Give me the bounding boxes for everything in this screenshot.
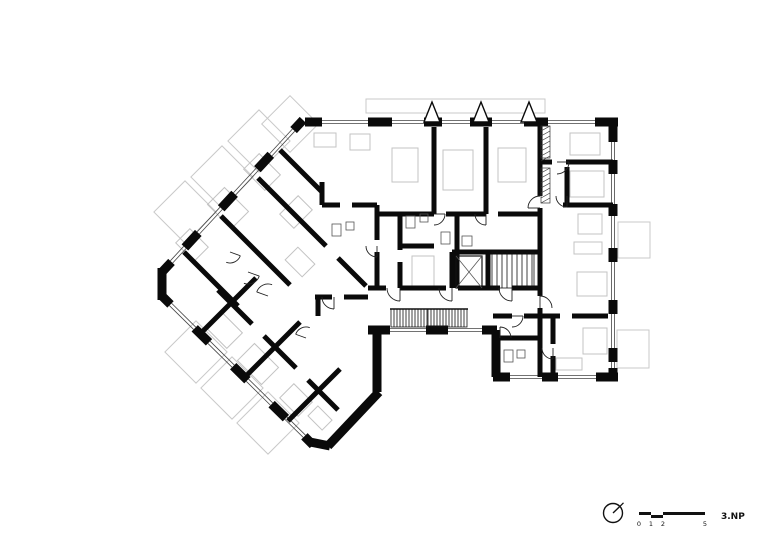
scale-label: 1 bbox=[649, 520, 653, 528]
fixture bbox=[504, 350, 513, 362]
interior-wall bbox=[218, 290, 252, 324]
balcony-diamond bbox=[191, 146, 253, 208]
scale-bar bbox=[651, 515, 663, 518]
north-arrow-icon bbox=[620, 503, 624, 507]
window bbox=[233, 168, 256, 193]
door-arc bbox=[387, 288, 400, 301]
furniture bbox=[577, 272, 607, 296]
door-arc bbox=[230, 252, 240, 256]
facade-wall bbox=[304, 436, 313, 445]
interior-wall bbox=[338, 258, 366, 286]
facade-wall bbox=[328, 392, 379, 446]
door-arc bbox=[528, 196, 540, 208]
door-arc bbox=[434, 214, 445, 225]
furniture bbox=[583, 328, 607, 354]
window bbox=[236, 170, 259, 195]
scale-label: 0 bbox=[637, 520, 641, 528]
furniture bbox=[392, 148, 418, 182]
fixture bbox=[441, 232, 450, 244]
furniture bbox=[314, 133, 336, 147]
window bbox=[172, 303, 196, 327]
door-arc bbox=[296, 334, 306, 338]
door-arc bbox=[248, 272, 259, 276]
door-arc bbox=[540, 296, 552, 308]
window bbox=[197, 207, 220, 232]
floor-plan-drawing: 01253.NP bbox=[0, 0, 768, 543]
furniture bbox=[412, 256, 434, 286]
fixture bbox=[346, 222, 354, 230]
door-arc bbox=[226, 256, 240, 263]
scale-label: 2 bbox=[661, 520, 665, 528]
window bbox=[169, 306, 193, 330]
floor-plan-page: 01253.NP bbox=[0, 0, 768, 543]
facade-wall bbox=[257, 155, 270, 169]
facade-wall bbox=[272, 404, 286, 418]
door-arc bbox=[499, 288, 512, 301]
balcony-diamond bbox=[237, 392, 299, 454]
scale-label: 5 bbox=[703, 520, 707, 528]
furniture bbox=[574, 242, 602, 254]
interior-wall bbox=[244, 322, 300, 378]
fixture bbox=[332, 224, 341, 236]
scale-bar bbox=[663, 512, 705, 515]
scale-bar bbox=[639, 512, 651, 515]
balcony-door bbox=[521, 102, 537, 122]
furniture bbox=[578, 214, 602, 234]
interior-wall bbox=[288, 369, 340, 421]
interior-wall bbox=[184, 252, 238, 306]
interior-wall bbox=[200, 278, 256, 334]
north-arrow-icon bbox=[613, 506, 620, 513]
floor-label: 3.NP bbox=[721, 512, 745, 522]
furniture bbox=[308, 406, 332, 430]
furniture bbox=[570, 133, 600, 155]
facade-wall bbox=[294, 120, 303, 130]
facade-wall bbox=[162, 296, 171, 304]
balcony-door bbox=[473, 102, 489, 122]
furniture bbox=[285, 247, 315, 277]
interior-wall bbox=[280, 150, 322, 192]
door-arc bbox=[257, 292, 268, 296]
door-arc bbox=[257, 284, 272, 292]
furniture bbox=[498, 148, 526, 182]
facade-wall bbox=[185, 233, 198, 248]
fixture bbox=[462, 236, 472, 246]
door-arc bbox=[512, 316, 523, 327]
window bbox=[199, 209, 222, 234]
furniture bbox=[443, 150, 473, 190]
balcony bbox=[618, 222, 650, 258]
fixture bbox=[517, 350, 525, 358]
furniture bbox=[570, 171, 604, 197]
furniture bbox=[280, 196, 313, 229]
fixture bbox=[406, 216, 415, 228]
balcony-slab bbox=[366, 99, 545, 113]
balcony bbox=[617, 330, 649, 368]
balcony-door bbox=[424, 102, 440, 122]
stair-hatch bbox=[391, 309, 428, 327]
furniture bbox=[206, 312, 243, 349]
stair-hatch bbox=[492, 252, 534, 288]
furniture bbox=[350, 134, 370, 150]
furniture bbox=[556, 358, 582, 370]
wardrobe-hatch bbox=[541, 198, 550, 203]
door-arc bbox=[296, 327, 310, 334]
facade-wall bbox=[221, 194, 234, 209]
